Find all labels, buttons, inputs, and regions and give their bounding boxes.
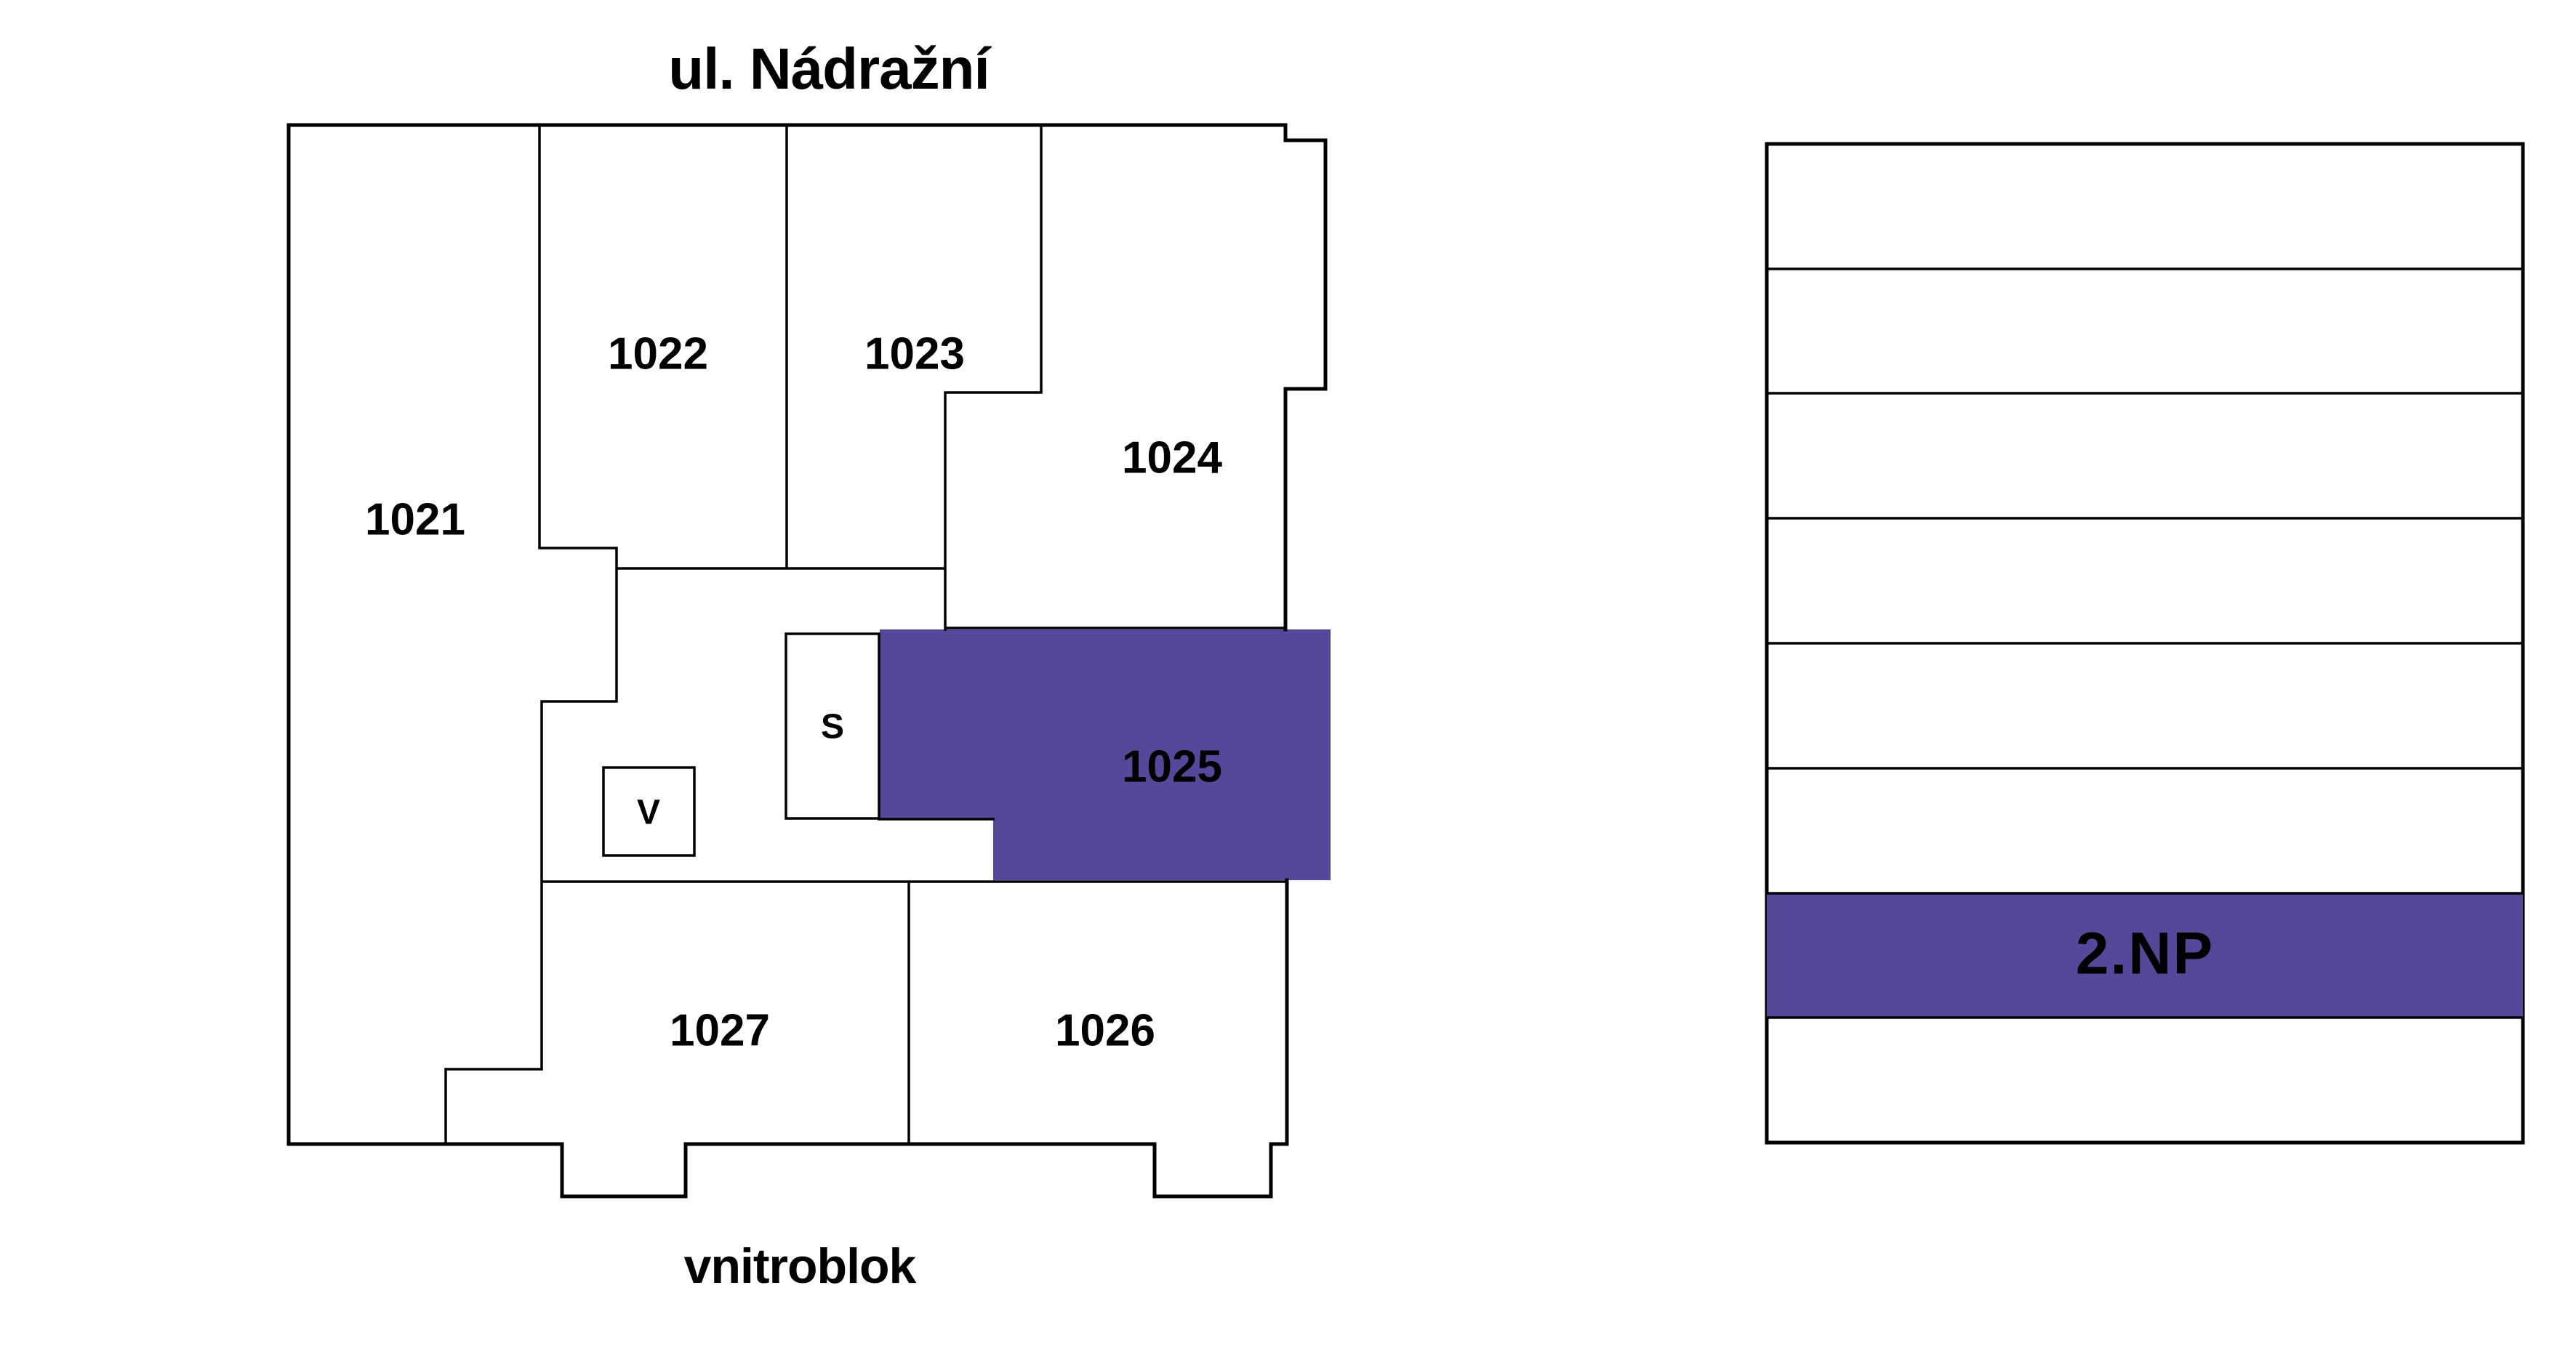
- unit-label-1024: 1024: [1122, 433, 1222, 483]
- floor-row-8[interactable]: [1767, 1018, 2523, 1143]
- floor-row-1[interactable]: [1767, 144, 2523, 269]
- service-room-s-label: S: [821, 708, 844, 746]
- floor-row-3[interactable]: [1767, 393, 2523, 518]
- unit-label-1023: 1023: [864, 329, 965, 379]
- unit-label-1022: 1022: [608, 329, 708, 379]
- unit-label-1021: 1021: [365, 495, 465, 545]
- street-label: ul. Nádražní: [668, 36, 992, 101]
- floor-row-4[interactable]: [1767, 518, 2523, 643]
- unit-label-1026: 1026: [1055, 1006, 1155, 1056]
- floor-row-2[interactable]: [1767, 269, 2523, 393]
- floor-stack: 2.NP: [1767, 144, 2523, 1143]
- floor-plan-figure: ul. Nádražní 1021 1022 1023 1024 1025 10…: [0, 0, 2576, 1365]
- service-room-v-label: V: [637, 794, 660, 832]
- site-plan-page: ul. Nádražní 1021 1022 1023 1024 1025 10…: [0, 0, 2576, 1365]
- unit-label-1025: 1025: [1122, 742, 1222, 792]
- courtyard-label: vnitroblok: [684, 1239, 917, 1294]
- floor-row-2np-label: 2.NP: [2076, 921, 2214, 987]
- floor-row-5[interactable]: [1767, 643, 2523, 768]
- unit-label-1027: 1027: [670, 1006, 770, 1056]
- floor-row-6[interactable]: [1767, 768, 2523, 893]
